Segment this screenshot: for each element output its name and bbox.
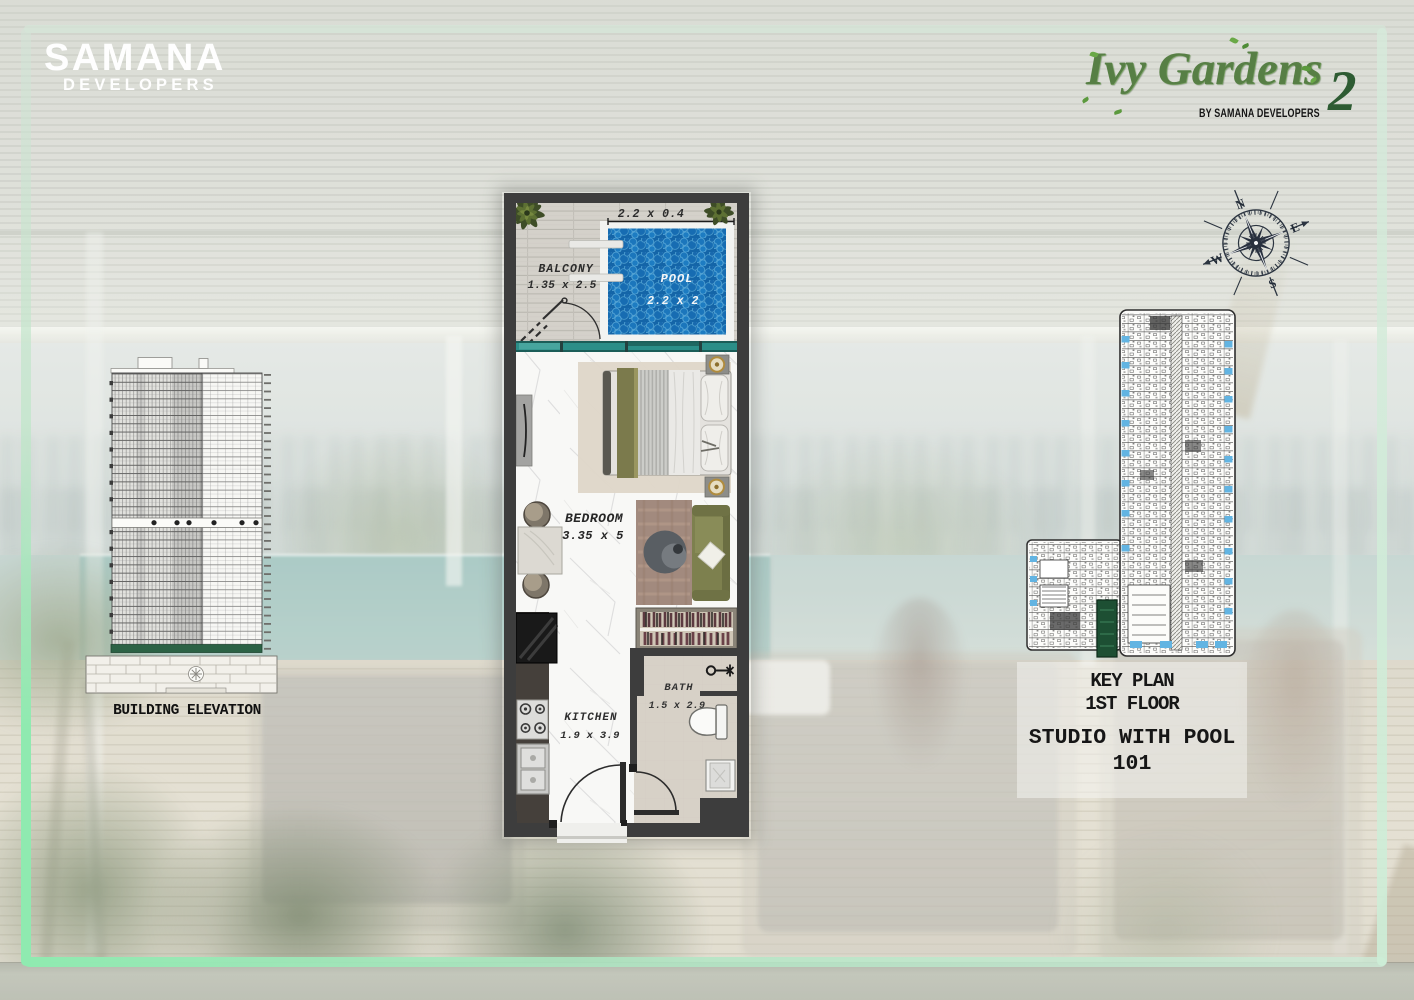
svg-text:N: N [1233,196,1247,212]
svg-text:KITCHEN: KITCHEN [564,712,617,724]
svg-text:3.35 x 5: 3.35 x 5 [562,529,624,543]
svg-text:1.35 x 2.5: 1.35 x 2.5 [527,280,596,292]
svg-text:BEDROOM: BEDROOM [565,511,624,526]
svg-text:BATH: BATH [664,682,693,694]
svg-text:S: S [1267,276,1279,292]
svg-text:POOL: POOL [661,272,694,286]
svg-text:2.2 x 0.4: 2.2 x 0.4 [618,208,685,221]
svg-text:2.2 x 2: 2.2 x 2 [647,295,699,308]
svg-text:1.9 x 3.9: 1.9 x 3.9 [560,730,619,742]
svg-text:BALCONY: BALCONY [538,263,593,276]
svg-text:E: E [1289,220,1302,236]
svg-text:BUILDING ELEVATION: BUILDING ELEVATION [113,703,261,719]
svg-text:W: W [1209,250,1226,268]
